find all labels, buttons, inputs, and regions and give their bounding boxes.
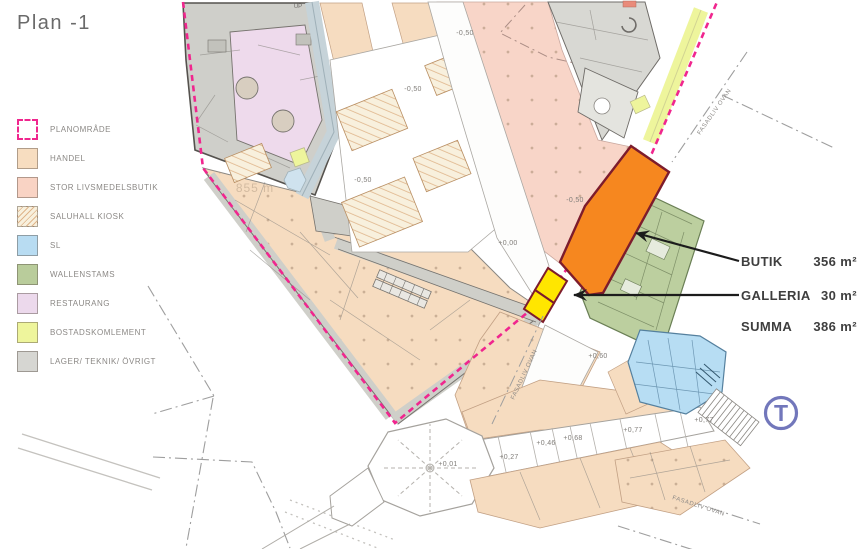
saluhall-kiosk-swatch [17, 206, 38, 227]
butik-value: 356 m² [813, 254, 857, 269]
planomrade-swatch [17, 119, 38, 140]
svg-text:+0,27: +0,27 [499, 454, 518, 461]
legend-item-restaurang: RESTAURANG [17, 289, 158, 318]
svg-text:+0,01: +0,01 [438, 461, 457, 468]
svg-text:-0,50: -0,50 [404, 86, 421, 93]
stor-livsmedelsbutik-swatch [17, 177, 38, 198]
legend-item-stor-livsmedelsbutik: STOR LIVSMEDELSBUTIK [17, 173, 158, 202]
svg-text:-0,50: -0,50 [354, 177, 371, 184]
svg-text:+0,60: +0,60 [588, 353, 607, 360]
galleria-annotation: GALLERIA 30 m² [741, 288, 857, 303]
galleria-label: GALLERIA [741, 288, 811, 303]
svg-text:+0,77: +0,77 [623, 427, 642, 434]
galleria-value: 30 m² [821, 288, 857, 303]
butik-annotation: BUTIK 356 m² [741, 254, 857, 269]
floor-plan-page: FASADLIV OVAN FASADLIV OVAN FASADLIV OVA… [0, 0, 863, 549]
legend-item-lager-teknik-ovrigt: LAGER/ TEKNIK/ ÖVRIGT [17, 347, 158, 376]
svg-text:T: T [774, 400, 788, 426]
handel-swatch [17, 148, 38, 169]
summa-value: 386 m² [813, 319, 857, 334]
bostadskomlement-swatch [17, 322, 38, 343]
summa-annotation: SUMMA 386 m² [741, 319, 857, 334]
restaurang-swatch [17, 293, 38, 314]
svg-text:+0,68: +0,68 [563, 435, 582, 442]
up-label: UP [294, 4, 302, 10]
svg-text:+0,77: +0,77 [694, 417, 713, 424]
svg-text:-0,50: -0,50 [456, 30, 473, 37]
metro-t-icon: T [766, 398, 797, 429]
legend-item-handel: HANDEL [17, 144, 158, 173]
legend-item-sl: SL [17, 231, 158, 260]
legend-item-planomrade: PLANOMRÅDE [17, 115, 158, 144]
wallenstams-swatch [17, 264, 38, 285]
summa-label: SUMMA [741, 319, 792, 334]
butik-label: BUTIK [741, 254, 783, 269]
page-title: Plan -1 [17, 12, 91, 35]
lager-teknik-ovrigt-swatch [17, 351, 38, 372]
svg-text:+0,46: +0,46 [536, 440, 555, 447]
svg-text:FASADLIV OVAN: FASADLIV OVAN [697, 88, 733, 136]
svg-text:+0,00: +0,00 [498, 240, 517, 247]
svg-text:-0,50: -0,50 [566, 197, 583, 204]
legend-item-wallenstams: WALLENSTAMS [17, 260, 158, 289]
ghost-area-label: 855 m [236, 181, 274, 195]
legend: PLANOMRÅDE HANDEL STOR LIVSMEDELSBUTIK S… [17, 115, 158, 376]
legend-item-saluhall-kiosk: SALUHALL KIOSK [17, 202, 158, 231]
plaza [262, 419, 494, 549]
sl-swatch [17, 235, 38, 256]
legend-item-bostadskomlement: BOSTADSKOMLEMENT [17, 318, 158, 347]
